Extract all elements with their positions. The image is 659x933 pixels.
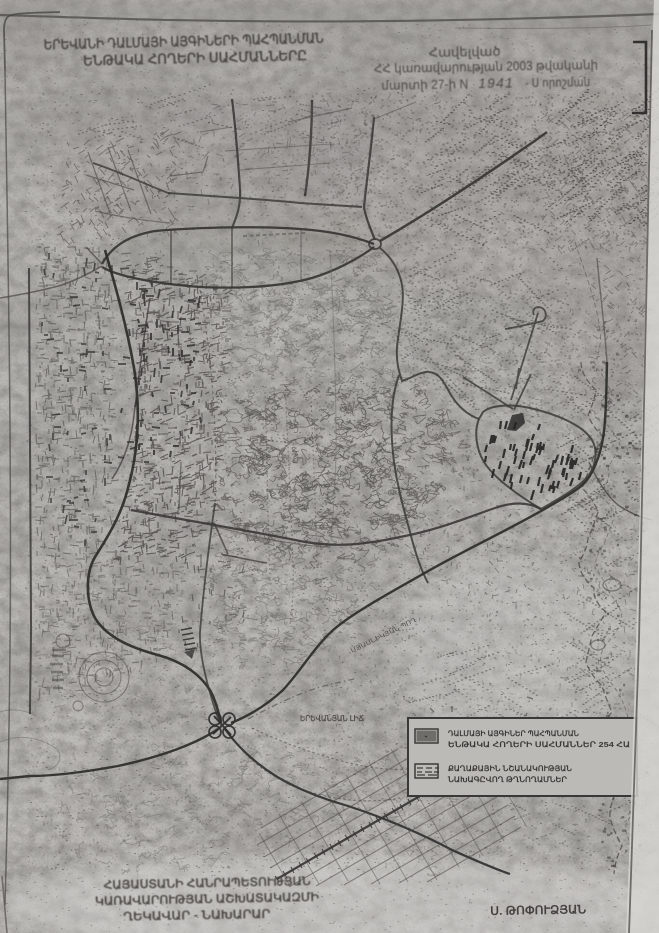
svg-text:ԵՆԹԱԿԱ ՀՈՂԵՐԻ ՍԱՀՄԱՆՆԵՐ 254 ՀԱ: ԵՆԹԱԿԱ ՀՈՂԵՐԻ ՍԱՀՄԱՆՆԵՐ 254 ՀԱ [448, 740, 630, 749]
svg-text:ԵՐԵՎԱՆՅԱՆ ԼԻՃ: ԵՐԵՎԱՆՅԱՆ ԼԻՃ [300, 714, 364, 723]
svg-text:Ս. ԹՈՓՈՒՁՅԱՆ: Ս. ԹՈՓՈՒՁՅԱՆ [490, 903, 587, 918]
svg-text:ԴԱԼՄԱՅԻ ԱՅԳԻՆԵՐ ՊԱՀՊԱՆՄԱՆ: ԴԱԼՄԱՅԻ ԱՅԳԻՆԵՐ ՊԱՀՊԱՆՄԱՆ [448, 729, 579, 738]
svg-text:ՆԱԽԱԳԸՎՈՂ ԹՂՆՈՂԱՄՆԵՐ: ՆԱԽԱԳԸՎՈՂ ԹՂՆՈՂԱՄՆԵՐ [447, 775, 568, 784]
svg-text:Հավելված: Հավելված [429, 44, 501, 60]
svg-text:ՔԱՂԱՔԱՅԻՆ ՆՇԱՆԱԿՈՒԹՅԱՆ: ՔԱՂԱՔԱՅԻՆ ՆՇԱՆԱԿՈՒԹՅԱՆ [448, 764, 572, 773]
